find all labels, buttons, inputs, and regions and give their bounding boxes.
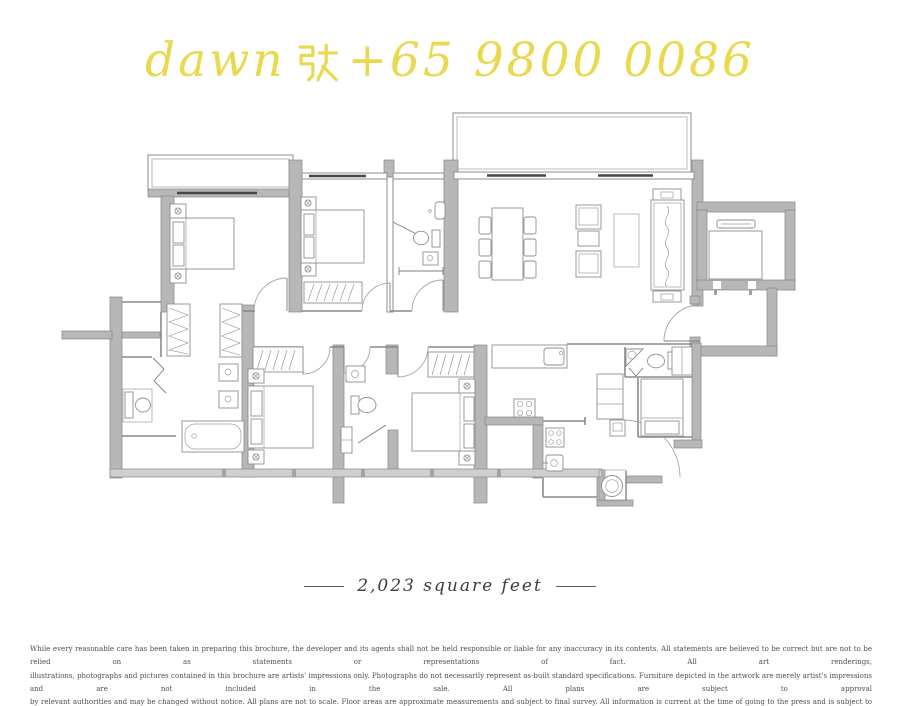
bedroom2-door xyxy=(362,283,390,311)
living-dining xyxy=(479,189,684,302)
sofa xyxy=(651,189,684,302)
washer xyxy=(602,476,623,497)
helper-bed xyxy=(641,379,683,436)
balcony-living xyxy=(453,113,691,173)
brochure-page: dawn +65 9800 0086 xyxy=(0,0,900,706)
helper-room xyxy=(641,379,683,436)
bedroom-3 xyxy=(248,347,313,464)
disclaimer: While every reasonable care has been tak… xyxy=(30,643,872,706)
closet-4 xyxy=(428,352,474,377)
area-caption: 2,023 square feet xyxy=(0,576,900,596)
hob-2 xyxy=(546,428,564,447)
wc xyxy=(626,347,692,375)
lift-car xyxy=(709,231,762,279)
prep-sink xyxy=(546,455,563,471)
master-bathroom xyxy=(123,364,244,452)
disclaimer-line-3: by relevant authorities and may be chang… xyxy=(30,696,872,706)
shared-bathroom xyxy=(341,366,376,453)
toilet xyxy=(123,389,152,422)
bath2-door xyxy=(412,280,443,311)
disclaimer-line-2: illustrations, photographs and pictures … xyxy=(30,670,872,697)
caption-dash-right xyxy=(556,586,596,587)
bedroom4-door xyxy=(398,347,428,377)
wardrobe-column-right xyxy=(220,304,242,357)
caption-dash-left xyxy=(304,586,344,587)
wardrobe-column-left xyxy=(167,304,190,356)
wc-toilet xyxy=(648,352,675,369)
vanity-sinks xyxy=(219,364,238,408)
wc-bifold-door xyxy=(629,368,643,376)
shared-bath-shower-screen xyxy=(358,425,386,443)
bedroom-4 xyxy=(412,352,475,465)
kitchen-sink xyxy=(544,348,564,365)
bed-4 xyxy=(412,393,475,451)
floor-plan-area xyxy=(0,0,900,706)
wardrobe-2 xyxy=(304,282,362,303)
dining-table xyxy=(479,208,536,280)
bed-2 xyxy=(301,210,364,263)
hob xyxy=(514,399,535,417)
master-bath-bifold-door xyxy=(153,358,166,393)
bedroom3-door xyxy=(303,347,330,374)
coffee-table xyxy=(614,214,639,267)
fridge-cabinets xyxy=(597,374,625,436)
master-door xyxy=(254,278,287,311)
toilet-3 xyxy=(351,396,376,414)
toilet-2 xyxy=(414,230,441,247)
bed-3 xyxy=(248,386,313,448)
balcony-top-left xyxy=(148,155,293,191)
armchairs xyxy=(576,205,601,277)
bedroom-2 xyxy=(301,197,364,303)
kitchen xyxy=(492,345,625,471)
master-bedroom xyxy=(167,204,242,357)
bathroom-2 xyxy=(399,202,445,275)
floor-plan xyxy=(0,0,900,706)
entry-door xyxy=(664,305,700,341)
closet-3 xyxy=(253,347,303,372)
bathtub xyxy=(182,421,244,452)
area-caption-text: 2,023 square feet xyxy=(357,576,543,596)
master-bed xyxy=(170,218,234,269)
disclaimer-line-1: While every reasonable care has been tak… xyxy=(30,643,872,670)
